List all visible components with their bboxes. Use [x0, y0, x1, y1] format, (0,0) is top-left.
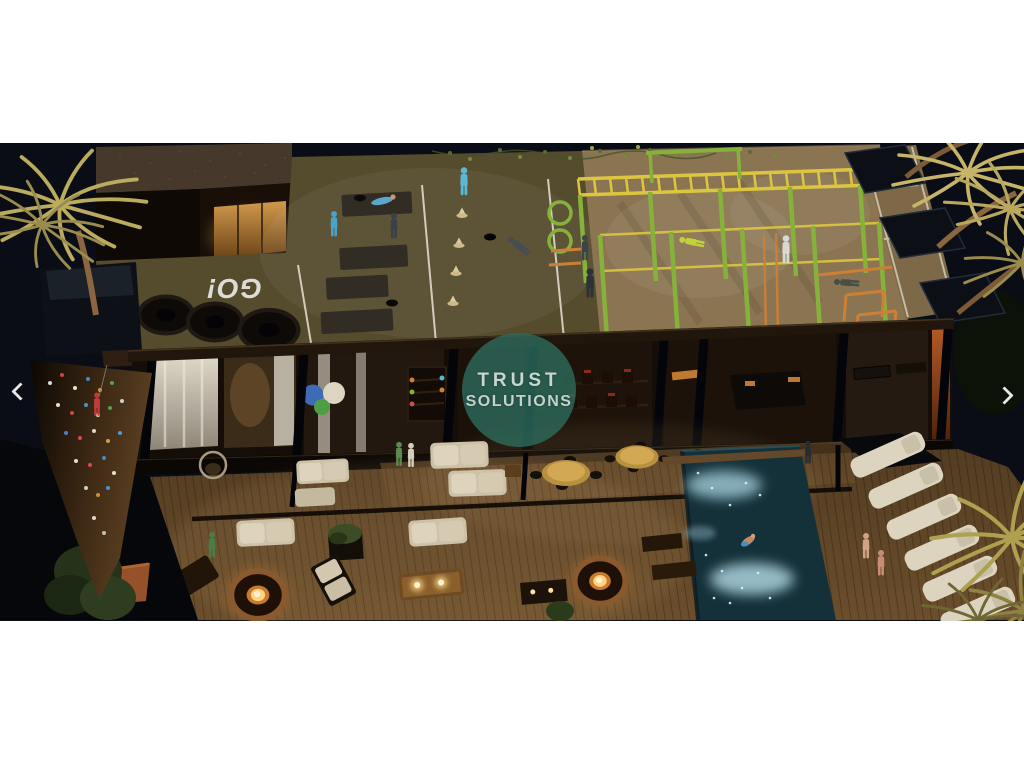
chevron-right-icon: [995, 386, 1013, 404]
carousel-prev-button[interactable]: [3, 367, 37, 415]
weight-rack: [408, 367, 446, 421]
watermark-line2: SOLUTIONS: [466, 393, 573, 411]
exercise-ball-green: [314, 399, 330, 415]
planter-box: [327, 523, 363, 561]
image-carousel-page: GO! TRUST SOLUTIONS: [0, 0, 1024, 768]
watermark-badge: TRUST SOLUTIONS: [462, 333, 576, 447]
rooftop-floor-text: GO!: [188, 260, 280, 304]
carousel-image-night-render: GO! TRUST SOLUTIONS: [0, 143, 1024, 621]
carousel-next-button[interactable]: [987, 371, 1021, 419]
fire-pit: [226, 567, 291, 622]
watermark-line1: TRUST: [477, 370, 560, 392]
chevron-left-icon: [11, 382, 29, 400]
fire-pit: [569, 554, 630, 608]
gym-machine: [730, 371, 806, 410]
